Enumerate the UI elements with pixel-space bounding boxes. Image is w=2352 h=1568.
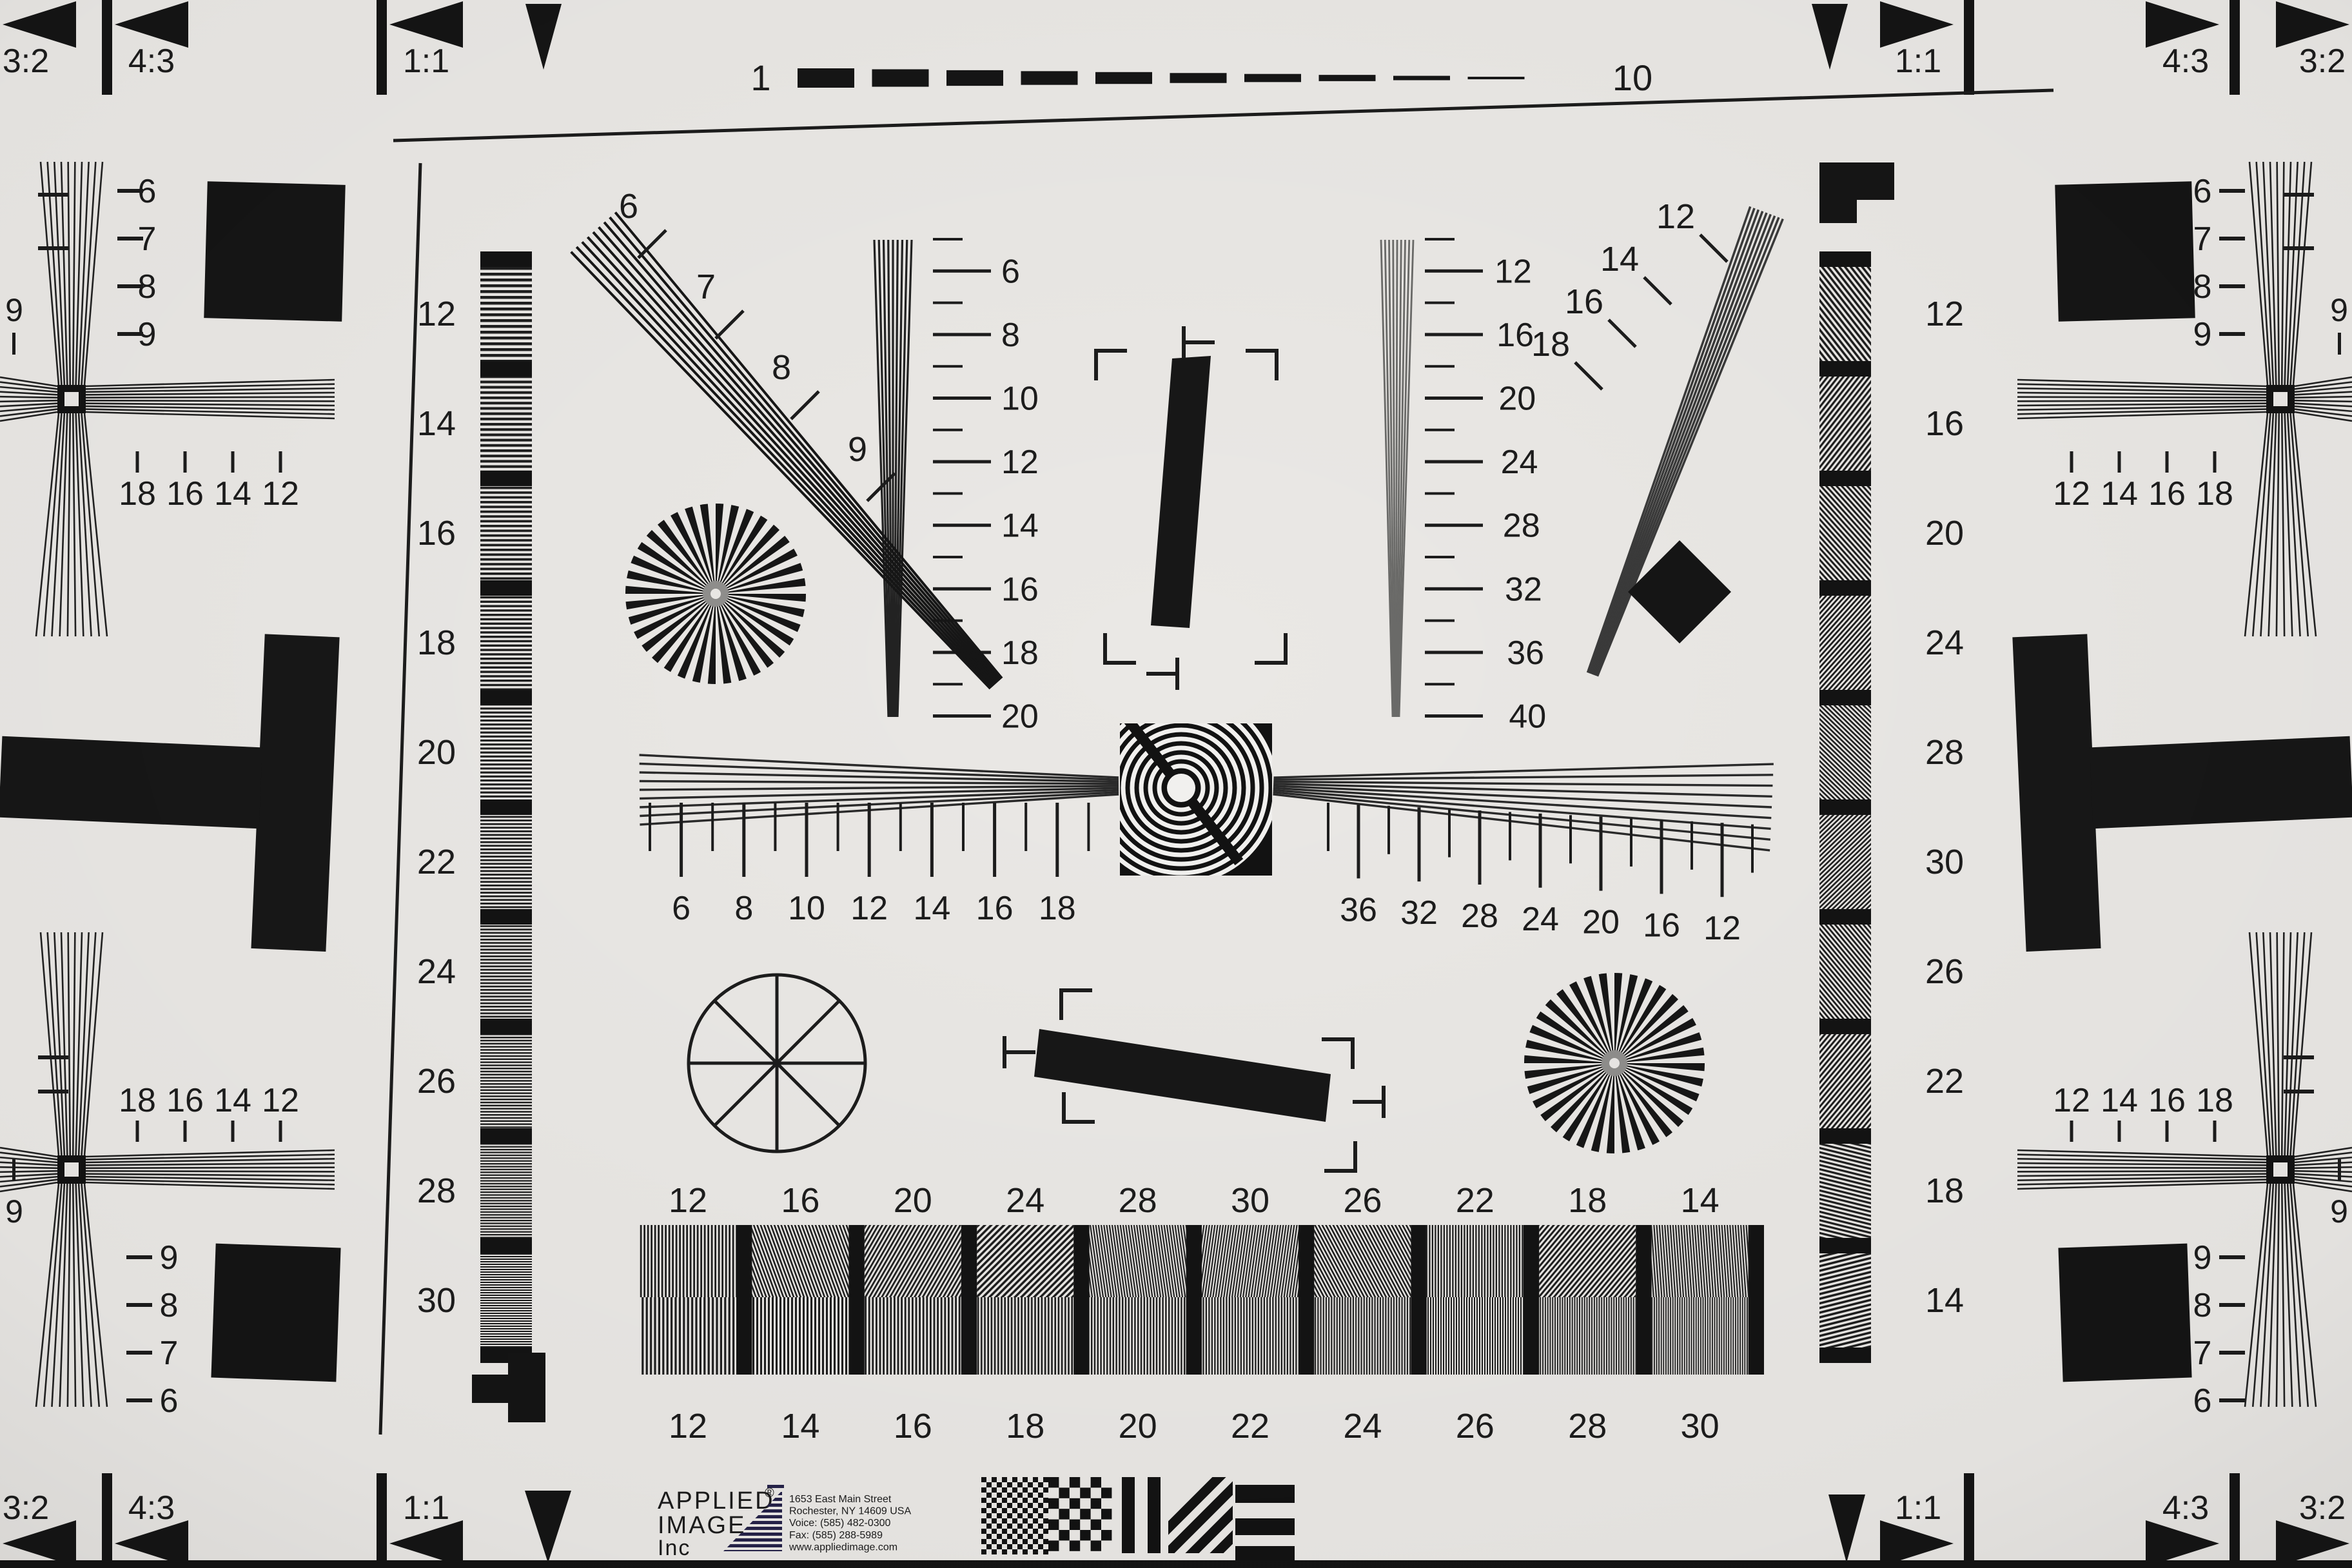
checker-cell [1101, 1509, 1112, 1519]
right-strip-separator [1819, 799, 1871, 815]
bottom-bars-bottom-label: 26 [1456, 1407, 1494, 1445]
right-vruler-minor-tick [1425, 556, 1455, 558]
chart-canvas: 3:24:31:11:14:33:23:24:31:11:14:33:21101… [0, 0, 2352, 1568]
fan-row-tick [2118, 451, 2121, 473]
upper-left-wedge-label: 7 [696, 268, 716, 306]
bullseye-center-dot [1167, 774, 1195, 802]
right-vruler-label: 16 [1496, 317, 1534, 354]
upper-right-wedge-label: 14 [1600, 240, 1639, 279]
bottom-bars-separator [1524, 1225, 1539, 1375]
fan-row-label: 12 [262, 475, 299, 513]
left-vruler-minor-tick [933, 238, 963, 240]
fan-column-label: 7 [2193, 220, 2212, 258]
aspect-ratio-label: 4:3 [128, 43, 175, 80]
bottom-bars-upper-cell [752, 1225, 848, 1297]
checker-cell [1002, 1529, 1007, 1534]
left-strip-separator [480, 1128, 532, 1144]
checker-cell [1012, 1487, 1017, 1493]
right-vruler-label: 40 [1509, 698, 1546, 736]
fan-line [2017, 1168, 2266, 1168]
right-strip-label: 22 [1925, 1062, 1964, 1101]
center-lruler-major-tick [742, 803, 745, 877]
fiducial-horizontal-bar [1235, 1518, 1295, 1535]
checker-cell [1002, 1508, 1007, 1513]
left-vruler-label: 18 [1001, 634, 1039, 672]
left-vruler-minor-tick [933, 302, 963, 304]
fan-row-label: 12 [2053, 1082, 2090, 1119]
right-vruler-label: 20 [1498, 380, 1536, 418]
checker-cell [1038, 1482, 1043, 1487]
center-lruler-label: 14 [913, 890, 950, 927]
checker-cell [997, 1544, 1002, 1549]
checker-cell [997, 1503, 1002, 1508]
right-vruler-major-tick [1425, 651, 1483, 654]
fiducial-vertical-bar [1122, 1477, 1135, 1553]
checker-cell [1028, 1524, 1033, 1529]
left-vruler-label: 16 [1001, 571, 1039, 608]
center-rruler-minor-tick [1751, 825, 1754, 873]
logo-line-image: IMAGE [658, 1512, 746, 1539]
fan-row-tick [136, 1121, 139, 1142]
aspect-marker-bar [2229, 0, 2240, 95]
left-strip-label: 14 [417, 404, 456, 443]
left-vruler-label: 10 [1001, 380, 1039, 418]
right-vruler-minor-tick [1425, 302, 1455, 304]
aspect-ratio-label: 1:1 [1895, 1489, 1941, 1527]
fiducial-vertical-bar [1148, 1477, 1161, 1553]
bottom-bars-lower-cell [1090, 1297, 1186, 1375]
fan-column-label: 7 [2193, 1335, 2212, 1372]
fan-line [0, 1167, 57, 1168]
left-strip-label: 18 [417, 623, 456, 662]
aspect-ratio-label: 1:1 [1895, 43, 1941, 80]
aspect-ratio-label: 1:1 [403, 1489, 449, 1527]
top-ruler-dash [1468, 77, 1525, 79]
checker-cell [1012, 1549, 1017, 1554]
left-strip-separator [480, 799, 532, 815]
left-vruler-minor-tick [933, 492, 963, 495]
checker-cell [1028, 1482, 1033, 1487]
black-patch-bottom-right [2058, 1244, 2191, 1382]
bottom-bars-top-label: 12 [669, 1181, 707, 1220]
fan-column-dash [117, 237, 143, 240]
aspect-ratio-label: 3:2 [3, 1489, 49, 1527]
checker-cell [1091, 1520, 1101, 1530]
checker-cell [1012, 1498, 1017, 1503]
top-ruler-dash [1095, 72, 1152, 84]
checker-cell [1038, 1544, 1043, 1549]
right-vruler-minor-tick [1425, 238, 1455, 240]
checker-cell [1033, 1477, 1038, 1482]
left-vruler-minor-tick [933, 365, 963, 367]
fan-column-dash [126, 1303, 152, 1307]
fan-row-label: 16 [166, 475, 204, 513]
center-lruler-label: 10 [788, 890, 825, 927]
checker-cell [1043, 1539, 1048, 1544]
cross-mark-vertical [508, 1353, 545, 1422]
left-strip-label: 24 [417, 952, 456, 991]
fan-row-label: 14 [214, 1082, 251, 1119]
bottom-bars-separator [961, 1225, 977, 1375]
right-strip-separator [1819, 1019, 1871, 1034]
edge-dash [38, 1055, 68, 1059]
aspect-ratio-label: 3:2 [2299, 43, 2346, 80]
left-vruler-minor-tick [933, 429, 963, 431]
bottom-bars-upper-cell [1539, 1225, 1636, 1297]
checker-cell [997, 1524, 1002, 1529]
edge-label: 9 [5, 1193, 23, 1230]
checker-cell [1033, 1487, 1038, 1493]
center-lruler-major-tick [868, 803, 871, 877]
bottom-bars-separator [848, 1225, 864, 1375]
right-vruler-label: 36 [1507, 634, 1544, 672]
right-strip-separator [1819, 690, 1871, 705]
center-lruler-minor-tick [649, 803, 651, 851]
checker-cell [1091, 1498, 1101, 1509]
checker-cell [1002, 1498, 1007, 1503]
bottom-bars-lower-cell [977, 1297, 1073, 1375]
checker-cell [1048, 1477, 1059, 1487]
checker-cell [981, 1529, 986, 1534]
upper-left-wedge-label: 9 [848, 430, 867, 469]
checker-cell [1012, 1508, 1017, 1513]
bottom-bars-upper-cell [865, 1225, 961, 1297]
right-vruler-major-tick [1425, 269, 1483, 273]
right-strip-label: 18 [1925, 1171, 1964, 1210]
checker-cell [1002, 1487, 1007, 1493]
bottom-bars-bottom-label: 12 [669, 1407, 707, 1445]
left-strip-separator [480, 251, 532, 267]
fan-row-label: 16 [2148, 1082, 2186, 1119]
checker-cell [1043, 1549, 1048, 1554]
right-vruler-label: 24 [1501, 444, 1538, 481]
checker-cell [1033, 1549, 1038, 1554]
top-ruler-dash [1319, 75, 1376, 81]
fan-row-label: 14 [214, 475, 251, 513]
right-vruler-minor-tick [1425, 683, 1455, 685]
logo-address-line: www.appliedimage.com [789, 1542, 897, 1553]
checker-cell [1043, 1518, 1048, 1524]
left-strip-separator [480, 580, 532, 596]
left-strip-label: 12 [417, 295, 456, 333]
bottom-bars-lower-cell [640, 1297, 736, 1375]
fan-column-label: 6 [2193, 1382, 2212, 1420]
left-strip-segment [480, 486, 532, 580]
center-rruler-major-tick [1539, 814, 1542, 888]
right-strip-segment [1819, 925, 1871, 1019]
right-strip-label: 16 [1925, 404, 1964, 443]
bottom-bars-top-label: 18 [1568, 1181, 1607, 1220]
left-vruler-major-tick [933, 269, 991, 273]
edge-tick [2338, 333, 2341, 355]
fan-row-tick [136, 451, 139, 473]
checker-cell [1002, 1539, 1007, 1544]
logo-line-applied: APPLIED [658, 1487, 775, 1514]
fan-row-tick [2166, 451, 2169, 473]
edge-dash [2284, 1055, 2314, 1059]
top-ruler-end-label: 10 [1612, 57, 1652, 98]
right-vruler-minor-tick [1425, 492, 1455, 495]
fan-row-label: 18 [119, 475, 156, 513]
fan-line [2017, 397, 2266, 398]
right-vruler-major-tick [1425, 587, 1483, 591]
bottom-bars-top-label: 16 [781, 1181, 819, 1220]
bottom-bars-bottom-label: 28 [1568, 1407, 1607, 1445]
fan-column-label: 9 [2193, 316, 2212, 353]
bottom-bars-bottom-label: 14 [781, 1407, 819, 1445]
edge-tick [2338, 1159, 2341, 1181]
fan-row-tick [184, 1121, 187, 1142]
checker-cell [1002, 1549, 1007, 1554]
cross-mark-horizontal [472, 1375, 508, 1403]
right-vruler-minor-tick [1425, 365, 1455, 367]
resolution-test-chart: 3:24:31:11:14:33:23:24:31:11:14:33:21101… [0, 0, 2352, 1568]
logo-line-inc: Inc [658, 1536, 691, 1560]
center-rruler-label: 16 [1643, 906, 1680, 944]
checker-cell [1038, 1534, 1043, 1539]
bottom-bars-separator [1636, 1225, 1651, 1375]
top-ruler-dash [1393, 76, 1450, 81]
right-strip-label: 24 [1925, 623, 1964, 662]
sector-circle [689, 975, 865, 1151]
checker-cell [1070, 1520, 1080, 1530]
fan-row-tick [2070, 451, 2073, 473]
left-vruler-major-tick [933, 587, 991, 591]
checker-cell [1043, 1487, 1048, 1493]
bottom-bars-separator [1298, 1225, 1314, 1375]
upper-left-wedge-label: 8 [772, 348, 791, 387]
center-lruler-minor-tick [899, 803, 902, 851]
edge-label: 9 [2330, 292, 2348, 328]
right-strip-separator [1819, 1238, 1871, 1253]
edge-label: 9 [5, 292, 23, 328]
left-strip-label: 20 [417, 733, 456, 772]
fan-line [0, 1171, 57, 1172]
bottom-bars-separator [1073, 1225, 1089, 1375]
fan-center-square-hole [2273, 1162, 2288, 1177]
checker-cell [992, 1539, 997, 1544]
checker-cell [1070, 1498, 1080, 1509]
center-rruler-label: 20 [1582, 904, 1620, 941]
left-strip-label: 28 [417, 1171, 456, 1210]
checker-cell [1080, 1487, 1090, 1498]
fan-line [86, 1171, 335, 1171]
center-lruler-major-tick [930, 803, 934, 877]
checker-cell [1028, 1513, 1033, 1518]
right-vruler-major-tick [1425, 397, 1483, 400]
left-strip-segment [480, 925, 532, 1019]
checker-cell [1070, 1477, 1080, 1487]
fan-column-label: 6 [2193, 173, 2212, 210]
checker-cell [1028, 1503, 1033, 1508]
center-lruler-label: 6 [672, 890, 691, 927]
checker-cell [1043, 1508, 1048, 1513]
fan-line [86, 1168, 335, 1168]
fan-line [2295, 400, 2352, 402]
checker-cell [981, 1539, 986, 1544]
checker-cell [1038, 1503, 1043, 1508]
checker-cell [1043, 1477, 1048, 1482]
aspect-marker-bar [2229, 1473, 2240, 1568]
edge-tick [12, 1159, 15, 1181]
logo-address-line: Rochester, NY 14609 USA [789, 1506, 911, 1517]
checker-cell [992, 1487, 997, 1493]
center-rruler-label: 28 [1461, 897, 1498, 935]
left-strip-segment [480, 815, 532, 909]
checker-cell [992, 1518, 997, 1524]
star-center-dot [710, 589, 721, 599]
bottom-bars-lower-cell [1539, 1297, 1636, 1375]
left-strip-segment [480, 1253, 532, 1347]
checker-cell [986, 1493, 992, 1498]
checker-cell [1023, 1498, 1028, 1503]
bottom-bars-top-label: 22 [1456, 1181, 1494, 1220]
fan-row-label: 18 [2196, 1082, 2233, 1119]
left-strip-segment [480, 596, 532, 690]
checker-cell [1070, 1540, 1080, 1551]
center-lruler-major-tick [680, 803, 683, 877]
left-strip-segment [480, 377, 532, 471]
checker-cell [1033, 1529, 1038, 1534]
aspect-marker-bar [377, 0, 387, 95]
bottom-bars-top-label: 26 [1343, 1181, 1382, 1220]
right-strip-separator [1819, 1128, 1871, 1144]
checker-cell [1007, 1503, 1012, 1508]
center-rruler-major-tick [1660, 819, 1663, 894]
checker-cell [1059, 1530, 1069, 1540]
fan-column-dash [2219, 1351, 2245, 1355]
aspect-marker-bar [1964, 1473, 1974, 1568]
black-patch-bottom-left [211, 1244, 340, 1382]
bottom-bars-separator [1749, 1225, 1764, 1375]
top-ruler-dash [872, 69, 929, 86]
fan-column-label: 6 [160, 1382, 179, 1420]
top-ruler-dash [946, 70, 1003, 86]
aspect-ratio-label: 3:2 [2299, 1489, 2346, 1527]
fan-row-label: 16 [166, 1082, 204, 1119]
left-strip-separator [480, 1019, 532, 1034]
fan-column-dash [117, 332, 143, 336]
center-rruler-major-tick [1418, 807, 1421, 881]
left-strip-segment [480, 1034, 532, 1128]
fan-column-dash [126, 1351, 152, 1355]
aspect-ratio-label: 4:3 [128, 1489, 175, 1527]
top-ruler-dash [1021, 71, 1078, 84]
bottom-bars-upper-cell [1202, 1225, 1298, 1297]
checker-cell [1017, 1544, 1023, 1549]
bottom-bars-upper-cell [977, 1225, 1073, 1297]
right-strip-segment [1819, 377, 1871, 471]
checker-cell [997, 1534, 1002, 1539]
right-strip-separator [1819, 471, 1871, 486]
checker-cell [981, 1518, 986, 1524]
black-patch-top-right [2055, 181, 2195, 321]
checker-cell [1023, 1508, 1028, 1513]
bottom-bars-lower-cell [1314, 1297, 1411, 1375]
left-vruler-label: 6 [1001, 253, 1020, 290]
fan-row-label: 12 [2053, 475, 2090, 513]
fan-row-label: 18 [119, 1082, 156, 1119]
right-vruler-minor-tick [1425, 620, 1455, 622]
fan-center-square-hole [64, 1162, 79, 1177]
center-rruler-label: 12 [1703, 910, 1741, 947]
fan-line [2017, 400, 2266, 401]
right-vruler-major-tick [1425, 333, 1483, 336]
checker-cell [1023, 1487, 1028, 1493]
bottom-bars-lower-cell [865, 1297, 961, 1375]
checker-cell [997, 1513, 1002, 1518]
left-vruler-major-tick [933, 714, 991, 718]
checker-cell [1002, 1518, 1007, 1524]
left-vruler-major-tick [933, 333, 991, 336]
checker-cell [1017, 1482, 1023, 1487]
checker-cell [1012, 1477, 1017, 1482]
left-vruler-label: 14 [1001, 507, 1039, 545]
fan-row-tick [2118, 1121, 2121, 1142]
fan-column-dash [117, 189, 143, 193]
left-vruler-minor-tick [933, 683, 963, 685]
checker-cell [1023, 1529, 1028, 1534]
center-rruler-minor-tick [1448, 809, 1451, 857]
checker-cell [1101, 1487, 1112, 1498]
aspect-marker-bar [377, 1473, 387, 1568]
fan-column-dash [2219, 189, 2245, 193]
checker-cell [1059, 1509, 1069, 1519]
left-vruler-major-tick [933, 524, 991, 527]
center-lruler-minor-tick [1024, 803, 1027, 851]
bottom-bars-separator [1411, 1225, 1426, 1375]
fan-column-dash [2219, 1255, 2245, 1259]
right-strip-label: 30 [1925, 843, 1964, 881]
left-vruler-label: 20 [1001, 698, 1039, 736]
bottom-bars-separator [1186, 1225, 1202, 1375]
right-vruler-major-tick [1425, 460, 1483, 464]
fan-row-label: 14 [2101, 475, 2138, 513]
right-strip-segment [1819, 1253, 1871, 1347]
fan-column-label: 9 [160, 1239, 179, 1277]
bottom-bars-top-label: 14 [1681, 1181, 1720, 1220]
center-rruler-minor-tick [1630, 818, 1632, 867]
bottom-bars-bottom-label: 16 [894, 1407, 932, 1445]
center-lruler-minor-tick [962, 803, 965, 851]
fan-line [2017, 1171, 2266, 1171]
checker-cell [1028, 1534, 1033, 1539]
checker-cell [1007, 1493, 1012, 1498]
bottom-bars-lower-cell [1202, 1297, 1298, 1375]
checker-cell [1017, 1493, 1023, 1498]
aspect-ratio-label: 4:3 [2162, 43, 2209, 80]
fan-center-square-hole [2273, 392, 2288, 406]
edge-dash [2284, 1090, 2314, 1093]
left-strip-segment [480, 267, 532, 361]
edge-tick [12, 333, 15, 355]
checker-cell [1059, 1487, 1069, 1498]
center-lruler-label: 8 [734, 890, 753, 927]
fan-column-dash [117, 284, 143, 288]
right-vruler-label: 32 [1505, 571, 1542, 608]
fan-row-tick [2213, 451, 2217, 473]
checker-cell [1028, 1544, 1033, 1549]
checker-cell [992, 1549, 997, 1554]
checker-cell [981, 1508, 986, 1513]
fan-line [2295, 1167, 2352, 1168]
fan-row-tick [2166, 1121, 2169, 1142]
fan-line [0, 397, 57, 398]
edge-dash [38, 1090, 68, 1093]
left-vruler-label: 8 [1001, 317, 1020, 354]
bottom-bars-lower-cell [752, 1297, 848, 1375]
upper-right-wedge-label: 16 [1565, 282, 1603, 321]
